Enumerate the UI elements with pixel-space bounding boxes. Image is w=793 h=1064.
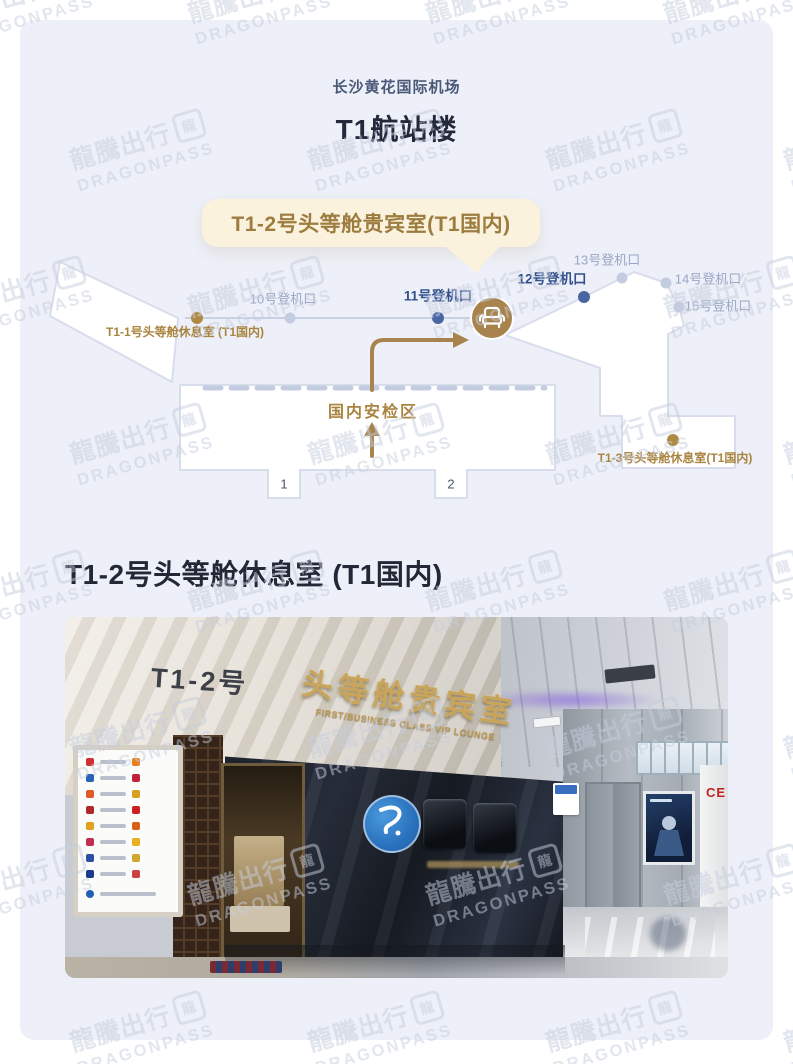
- lounge-entrance-photo: T1-2号 头等舱贵宾室 FIRST/BUSINESS CLASS VIP LO…: [65, 617, 728, 978]
- watermark-cn-text: 龍騰出行: [779, 702, 793, 765]
- watermark-cn-text: 龍騰出行: [779, 408, 793, 471]
- photo-brand-glyph: [365, 797, 415, 847]
- photo-ad-lightbox: [643, 791, 695, 865]
- gate-14-dot: [661, 278, 672, 289]
- photo-wall-sign-header: [555, 785, 577, 794]
- watermark: 龍騰出行龍DRAGONPASS: [779, 692, 793, 785]
- photo-brand-character: [473, 803, 517, 853]
- photo-brand-character: [423, 799, 467, 849]
- watermark: 龍騰出行龍DRAGONPASS: [779, 398, 793, 491]
- section-title: T1-2号头等舱休息室 (T1国内): [65, 553, 443, 593]
- gate-10-label: 10号登机口: [250, 292, 316, 307]
- lounge-marker: [471, 297, 513, 339]
- photo-brand-logo-circle: [363, 795, 421, 853]
- watermark: 龍騰出行龍DRAGONPASS: [779, 986, 793, 1064]
- terminal-title: T1航站楼: [20, 108, 773, 148]
- lounge-t1-1-label: T1-1号头等舱休息室 (T1国内): [106, 324, 264, 339]
- photo-door-interior-light: [234, 836, 284, 906]
- lounge-callout: T1-2号头等舱贵宾室(T1国内): [202, 199, 540, 247]
- lounge-guide-page: { "watermark": { "cn": "龍騰出行", "en": "DR…: [0, 0, 793, 1064]
- lounge-t1-1-dot: [191, 312, 203, 324]
- gate-14-label: 14号登机口: [675, 272, 741, 287]
- door-1-label: 1: [280, 477, 287, 492]
- route-to-lounge-arrow: [372, 340, 453, 390]
- gate-11-label: 11号登机口: [404, 288, 472, 304]
- gate-12-dot: [578, 291, 590, 303]
- door-2-label: 2: [447, 477, 454, 492]
- photo-ad-person: [662, 816, 676, 830]
- callout-tail: [440, 246, 506, 276]
- photo-partner-logo-board: [73, 745, 183, 917]
- photo-reception-counter: [230, 906, 290, 932]
- lounge-callout-label: T1-2号头等舱贵宾室(T1国内): [231, 208, 510, 238]
- photo-pillar-sign: CE: [706, 785, 726, 800]
- photo-brand-subtext: [427, 861, 519, 868]
- photo-room-number-sign: T1-2号: [150, 656, 250, 702]
- terminal-security-hall: [180, 385, 555, 498]
- gate-15-dot: [674, 302, 685, 313]
- watermark-en-text: DRAGONPASS: [789, 727, 793, 784]
- watermark-cn-text: 龍騰出行: [779, 996, 793, 1059]
- gate-15-label: 15号登机口: [685, 299, 751, 314]
- watermark: 龍騰出行龍DRAGONPASS: [779, 104, 793, 197]
- gate-12-label: 12号登机口: [517, 271, 586, 287]
- lounge-t1-3-dot: [667, 434, 679, 446]
- photo-ad-text-lines: [650, 799, 672, 802]
- airport-name: 长沙黄花国际机场: [20, 76, 773, 97]
- gate-13-label: 13号登机口: [574, 253, 640, 268]
- terminal-left-wing: [50, 262, 178, 382]
- lounge-t1-3-label: T1-3号头等舱休息室(T1国内): [598, 450, 753, 465]
- gate-11-dot: [432, 312, 444, 324]
- watermark-en-text: DRAGONPASS: [789, 433, 793, 490]
- watermark-cn-text: 龍騰出行: [779, 114, 793, 177]
- gate-10-dot: [285, 313, 296, 324]
- terminal-map: 国内安检区 10号登机口 11号登机口 12号登机口 13号登机口 14号登机口…: [40, 250, 760, 505]
- security-area-label: 国内安检区: [328, 402, 418, 421]
- gate-13-dot: [617, 273, 628, 284]
- watermark-en-text: DRAGONPASS: [789, 139, 793, 196]
- content-card: 长沙黄花国际机场 T1航站楼 国内安检区: [20, 20, 773, 1040]
- photo-lightbox-floor-reflection: [650, 917, 686, 951]
- arrow-head-right-icon: [453, 332, 469, 348]
- watermark-en-text: DRAGONPASS: [789, 1021, 793, 1064]
- photo-ad-person-body: [654, 830, 684, 856]
- photo-door-mat: [210, 961, 282, 973]
- photo-wall-sign: [553, 783, 579, 815]
